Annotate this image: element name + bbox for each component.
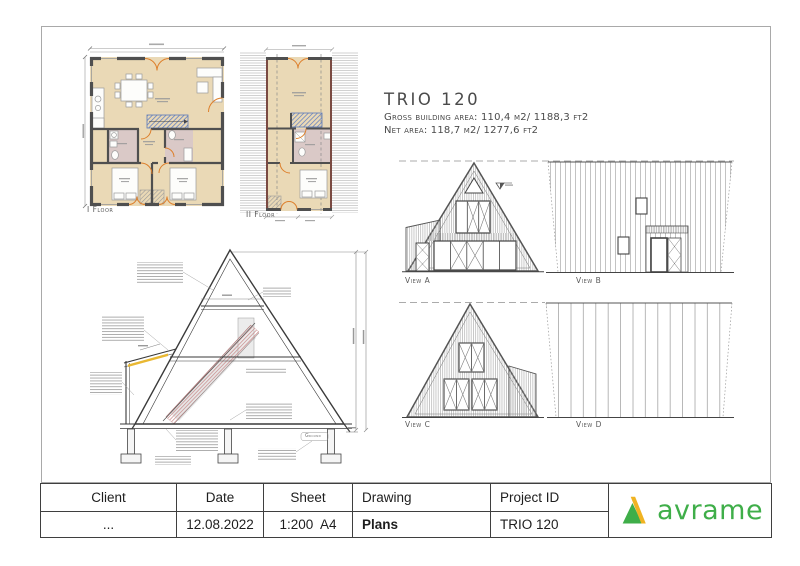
title-block: Client ... Date 12.08.2022 Sheet 1:200 A… (40, 483, 772, 538)
date-value: 12.08.2022 (177, 512, 263, 537)
title-block-col-project-id: Project ID TRIO 120 (491, 484, 609, 537)
stairs-plan2 (291, 113, 322, 127)
cross-section (90, 250, 368, 465)
elevation-view-b (546, 162, 734, 273)
gross-area-text: Gross building area: 110,4 m2/ 1188,3 ft… (384, 112, 588, 125)
floor-plan-2 (240, 45, 358, 221)
brand-logo: avrame (609, 484, 771, 537)
view-a-label: View A (405, 276, 430, 285)
net-area-text: Net area: 118,7 m2/ 1277,6 ft2 (384, 125, 588, 138)
drawing-value: Plans (353, 512, 490, 537)
title-block-col-sheet: Sheet 1:200 A4 (264, 484, 353, 537)
floor1-label: I Floor (87, 205, 113, 214)
title-block-col-client: Client ... (41, 484, 177, 537)
floor-plan-1 (83, 44, 227, 209)
stair-railing-hatch (166, 325, 259, 424)
floor2-label: II Floor (246, 210, 275, 219)
elevation-view-a (402, 163, 544, 272)
sheet-heading: TRIO 120 Gross building area: 110,4 m2/ … (384, 90, 588, 137)
view-d-label: View D (576, 420, 602, 429)
sheet-value: 1:200 A4 (264, 512, 352, 537)
date-header: Date (177, 484, 263, 512)
view-b-label: View B (576, 276, 601, 285)
project-title: TRIO 120 (384, 90, 588, 109)
logo-text: avrame (657, 497, 763, 524)
client-header: Client (41, 484, 176, 512)
title-block-col-drawing: Drawing Plans (353, 484, 491, 537)
ground-label: Ground (305, 434, 321, 439)
drawing-sheet: TRIO 120 Gross building area: 110,4 m2/ … (0, 0, 800, 566)
project-id-value: TRIO 120 (491, 512, 608, 537)
view-c-label: View C (405, 420, 430, 429)
architectural-drawing-canvas (0, 0, 800, 566)
drawing-header: Drawing (353, 484, 490, 512)
elevation-view-d (546, 303, 734, 418)
client-value: ... (41, 512, 176, 537)
sheet-header: Sheet (264, 484, 352, 512)
elevation-view-c (402, 304, 544, 418)
logo-triangle-icon (620, 495, 652, 527)
spec-annotation-blocks (90, 262, 296, 465)
title-block-col-date: Date 12.08.2022 (177, 484, 264, 537)
project-id-header: Project ID (491, 484, 608, 512)
